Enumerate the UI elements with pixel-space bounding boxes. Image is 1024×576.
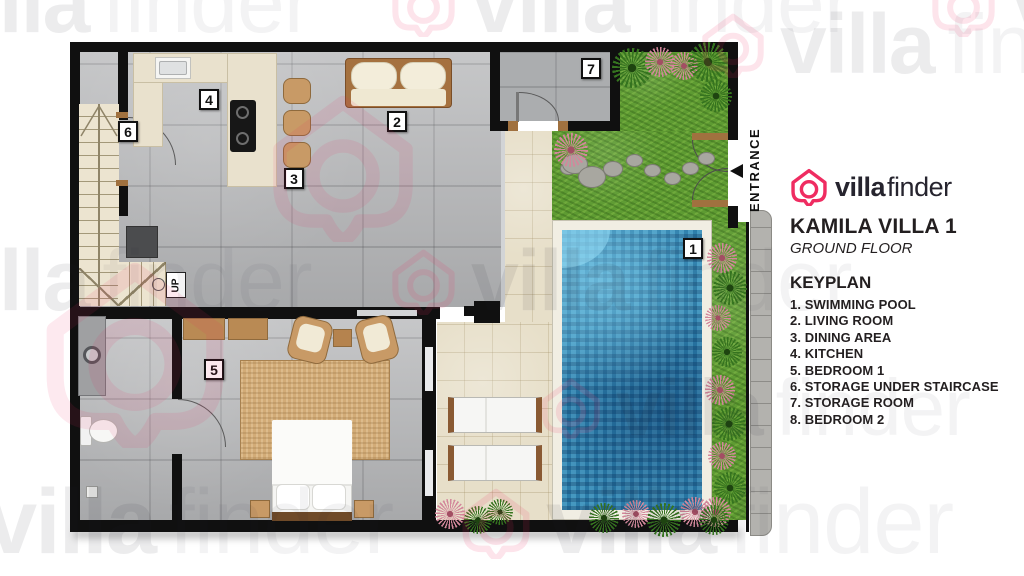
- bathroom-sink-icon: [83, 346, 101, 364]
- info-panel: villafinder KAMILA VILLA 1 GROUND FLOOR …: [790, 168, 1005, 428]
- wall-bath-divider-top: [172, 319, 182, 399]
- plan-marker-6: 6: [118, 121, 138, 142]
- plant-icon: [435, 499, 465, 529]
- plant-icon: [688, 42, 728, 82]
- bed-pillow-1: [276, 484, 310, 510]
- keyplan-list: 1. SWIMMING POOL2. LIVING ROOM3. DINING …: [790, 297, 1005, 428]
- garden-stone-icon: [626, 154, 643, 167]
- keyplan-item: 6. STORAGE UNDER STAIRCASE: [790, 379, 1005, 395]
- kitchen-sink-basin: [159, 61, 187, 75]
- keyplan-item: 2. LIVING ROOM: [790, 313, 1005, 329]
- toilet-bowl: [89, 419, 118, 443]
- entrance-arrow-icon: [730, 164, 743, 178]
- bar-stool-2: [283, 110, 311, 136]
- wall-stairs-stub: [118, 186, 128, 216]
- plant-icon: [712, 337, 742, 367]
- keyplan-item: 3. DINING AREA: [790, 330, 1005, 346]
- wall-stairs: [118, 42, 128, 120]
- pillar: [474, 301, 500, 323]
- keyplan-item: 8. BEDROOM 2: [790, 412, 1005, 428]
- sofa-cushion-1: [351, 62, 397, 91]
- bed-pillow-2: [312, 484, 346, 510]
- sofa-cushion-2: [400, 62, 446, 91]
- glass-wall-living: [501, 131, 505, 307]
- garden-stone-icon: [578, 166, 606, 188]
- plant-icon: [487, 499, 513, 525]
- bed-duvet: [272, 420, 352, 486]
- watermark: villafinder: [930, 0, 1024, 53]
- garden-path-floor: [505, 131, 552, 322]
- plant-icon: [713, 271, 747, 305]
- brand-logo: villafinder: [790, 168, 1005, 206]
- wall-storage-left: [490, 42, 500, 131]
- bed-headboard: [272, 512, 352, 521]
- plant-icon: [699, 505, 729, 535]
- plant-icon: [554, 133, 588, 167]
- nightstand-1: [250, 500, 270, 518]
- outer-stone-path: [750, 210, 772, 536]
- plant-icon: [700, 80, 732, 112]
- plant-icon: [707, 243, 737, 273]
- brand-wordmark: villafinder: [835, 172, 952, 203]
- keyplan-item: 5. BEDROOM 1: [790, 363, 1005, 379]
- plant-icon: [708, 442, 736, 470]
- watermark-house-icon: [930, 0, 997, 37]
- stove-burner-1: [236, 106, 249, 119]
- bar-stool-1: [283, 78, 311, 104]
- wall-garden-edge: [746, 222, 749, 532]
- swimming-pool: [562, 230, 702, 510]
- bar-stool-3: [283, 142, 311, 168]
- watermark-house-icon: [390, 0, 457, 37]
- wardrobe-1: [183, 318, 225, 340]
- plant-icon: [712, 407, 746, 441]
- keyplan-item: 7. STORAGE ROOM: [790, 395, 1005, 411]
- stairs-up-circle-icon: [152, 278, 165, 291]
- storage6-door-jamb-bottom: [116, 180, 128, 186]
- entrance-label: ENTRANCE: [747, 132, 763, 212]
- plant-icon: [705, 305, 731, 331]
- wall-storage-bottom-b: [560, 121, 620, 131]
- staircase-break-line: [79, 268, 119, 306]
- staircase-chevron: [79, 100, 119, 140]
- storage6-door-jamb-top: [116, 112, 128, 118]
- garden-stone-icon: [603, 161, 623, 177]
- garden-stone-icon: [644, 164, 661, 177]
- plan-marker-1: 1: [683, 238, 703, 259]
- plant-icon: [705, 375, 735, 405]
- plant-icon: [647, 503, 681, 537]
- keyplan-item: 1. SWIMMING POOL: [790, 297, 1005, 313]
- nightstand-2: [354, 500, 374, 518]
- wall-right-gate-stub: [728, 206, 738, 228]
- pillar-tab: [464, 306, 476, 316]
- sofa-seat: [351, 89, 446, 106]
- villafinder-house-icon: [790, 168, 828, 206]
- garden-stone-icon: [698, 152, 715, 165]
- keyplan-item: 4. KITCHEN: [790, 346, 1005, 362]
- garden-stone-icon: [682, 162, 699, 175]
- plant-icon: [589, 503, 619, 533]
- keyplan-heading: KEYPLAN: [790, 273, 1005, 293]
- storage7-jamb-right: [558, 121, 568, 131]
- gate-leaf-top: [692, 133, 728, 140]
- plan-marker-7: 7: [581, 58, 601, 79]
- page: { "brand": { "logo_bold": "villa", "logo…: [0, 0, 1024, 576]
- window-bedroom-2: [425, 450, 433, 496]
- floor-plan: UP ENTRANCE 1234567: [70, 42, 772, 538]
- floor-subtitle: GROUND FLOOR: [790, 240, 1005, 257]
- side-table: [333, 329, 352, 347]
- floor-drain: [86, 486, 98, 498]
- plan-marker-4: 4: [199, 89, 219, 110]
- window-bedroom-1: [425, 347, 433, 391]
- sun-lounger-1: [448, 397, 542, 433]
- wall-bath-divider-bottom: [172, 454, 182, 520]
- plan-marker-3: 3: [284, 168, 304, 189]
- plan-marker-2: 2: [387, 111, 407, 132]
- garden-stone-icon: [664, 172, 681, 185]
- storage7-jamb-left: [508, 121, 518, 131]
- kitchen-cabinet: [126, 226, 158, 258]
- stairs-up-label: UP: [166, 272, 186, 298]
- stove-burner-2: [236, 132, 249, 145]
- wardrobe-2: [228, 318, 268, 340]
- villa-title: KAMILA VILLA 1: [790, 215, 1005, 239]
- sun-lounger-2: [448, 445, 542, 481]
- plant-icon: [622, 500, 650, 528]
- plan-marker-5: 5: [204, 359, 224, 380]
- gate-leaf-bottom: [692, 200, 728, 207]
